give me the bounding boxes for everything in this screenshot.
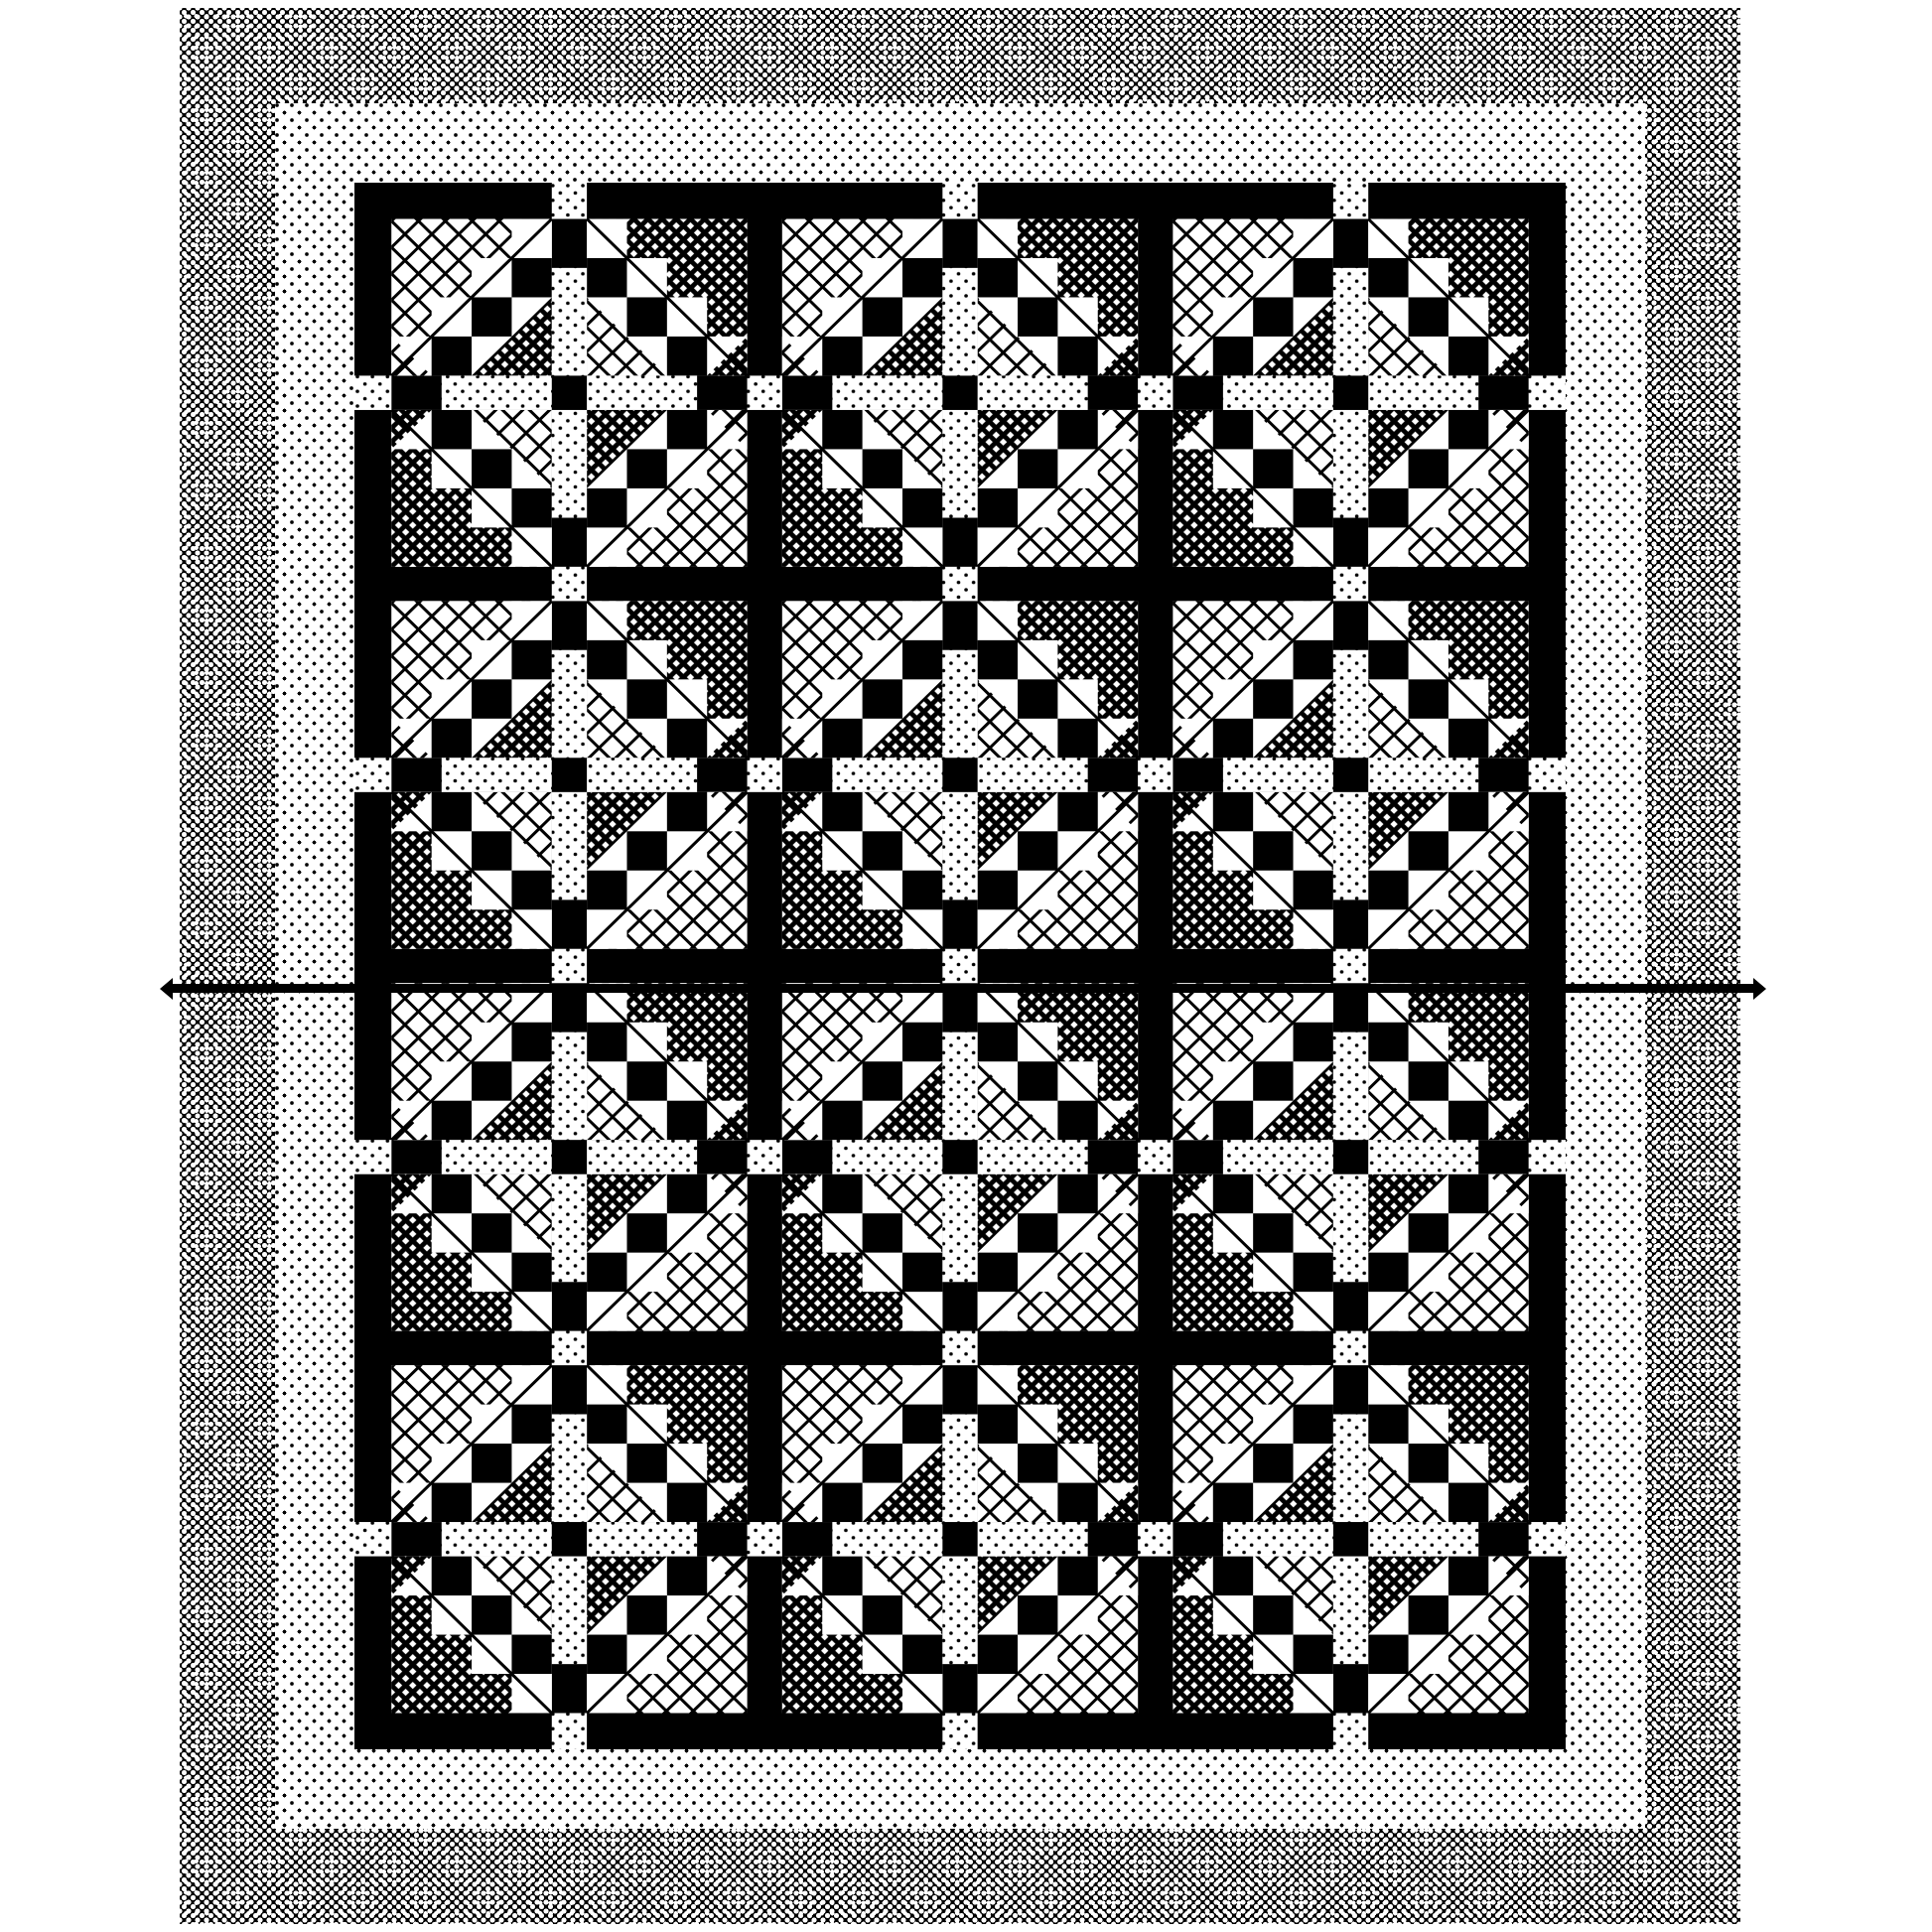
- chain-strip: [442, 375, 552, 410]
- frame-cornerstone: [354, 1140, 391, 1174]
- sub-block-sw: [1173, 410, 1332, 567]
- frame-cornerstone: [354, 758, 391, 792]
- sub-block-se: [587, 1174, 747, 1331]
- chain-cornerstone: [748, 758, 782, 792]
- sub-block-nw: [1173, 219, 1332, 376]
- chain-strip: [552, 792, 587, 900]
- sub-block-sw: [1173, 1174, 1332, 1331]
- outer-speckle-border: [180, 8, 1740, 1924]
- chain-cornerstone: [552, 1331, 587, 1366]
- frame-cornerstone: [552, 183, 587, 219]
- sub-block-nw: [391, 983, 551, 1140]
- quilt-diagram: [180, 8, 1740, 1924]
- sub-block-nw: [391, 219, 551, 376]
- chain-strip: [1368, 758, 1478, 792]
- frame-cornerstone: [1529, 1522, 1566, 1557]
- chain-strip: [1333, 1174, 1368, 1283]
- sub-block-sw: [782, 1174, 942, 1331]
- frame-cornerstone: [942, 183, 977, 219]
- chain-strip: [587, 758, 697, 792]
- chain-cornerstone: [1138, 375, 1173, 410]
- chain-strip: [942, 792, 977, 900]
- sub-block-sw: [391, 792, 551, 949]
- chain-strip: [978, 758, 1088, 792]
- sub-block-ne: [1368, 601, 1528, 758]
- chain-cornerstone: [552, 567, 587, 602]
- chain-cornerstone: [1138, 1140, 1173, 1174]
- fold-line-left-arrow-icon: [160, 978, 173, 1000]
- fold-line-right-arrow-icon: [1753, 978, 1766, 1000]
- chain-strip: [978, 1140, 1088, 1174]
- frame-cornerstone: [1529, 758, 1566, 792]
- chain-strip: [442, 1140, 552, 1174]
- chain-cornerstone: [942, 567, 977, 602]
- sub-block-ne: [587, 219, 747, 376]
- sub-block-nw: [1173, 601, 1332, 758]
- sub-block-sw: [782, 792, 942, 949]
- chain-strip: [942, 1174, 977, 1283]
- chain-strip: [1368, 1140, 1478, 1174]
- sub-block-ne: [587, 1365, 747, 1522]
- chain-strip: [1333, 1557, 1368, 1665]
- sub-block-ne: [978, 1365, 1138, 1522]
- sub-block-sw: [391, 1174, 551, 1331]
- chain-strip: [442, 758, 552, 792]
- sub-block-sw: [1173, 1557, 1332, 1714]
- chain-cornerstone: [748, 1522, 782, 1557]
- chain-strip: [552, 1033, 587, 1141]
- frame-cornerstone: [1333, 1713, 1368, 1749]
- frame-cornerstone: [1529, 375, 1566, 410]
- sub-block-sw: [1173, 792, 1332, 949]
- chain-cornerstone: [942, 949, 977, 984]
- frame-cornerstone: [354, 375, 391, 410]
- chain-strip: [1368, 1522, 1478, 1557]
- chain-cornerstone: [748, 375, 782, 410]
- sub-block-sw: [391, 1557, 551, 1714]
- chain-strip: [942, 410, 977, 518]
- chain-strip: [1333, 792, 1368, 900]
- sub-block-ne: [1368, 219, 1528, 376]
- sub-block-se: [1368, 410, 1528, 567]
- sub-block-se: [978, 1557, 1138, 1714]
- chain-strip: [832, 1140, 942, 1174]
- inner-polka-dot-border: [275, 103, 1645, 1829]
- chain-strip: [942, 1414, 977, 1522]
- chain-strip: [1223, 1522, 1333, 1557]
- chain-strip: [1333, 1033, 1368, 1141]
- chain-cornerstone: [942, 1331, 977, 1366]
- chain-cornerstone: [1333, 1331, 1368, 1366]
- sub-block-se: [587, 410, 747, 567]
- sub-block-nw: [782, 601, 942, 758]
- chain-strip: [1223, 375, 1333, 410]
- chain-strip: [832, 375, 942, 410]
- sub-block-nw: [782, 1365, 942, 1522]
- sub-block-ne: [978, 983, 1138, 1140]
- chain-strip: [1333, 1414, 1368, 1522]
- frame-cornerstone: [942, 1713, 977, 1749]
- sub-block-se: [1368, 792, 1528, 949]
- chain-strip: [978, 1522, 1088, 1557]
- chain-cornerstone: [1138, 758, 1173, 792]
- chain-strip: [552, 1557, 587, 1665]
- sub-block-nw: [782, 983, 942, 1140]
- chain-strip: [832, 1522, 942, 1557]
- chain-strip: [552, 1414, 587, 1522]
- chain-cornerstone: [1138, 1522, 1173, 1557]
- frame-cornerstone: [552, 1713, 587, 1749]
- sub-block-se: [978, 1174, 1138, 1331]
- chain-strip: [832, 758, 942, 792]
- sub-block-nw: [391, 601, 551, 758]
- sub-block-se: [1368, 1557, 1528, 1714]
- chain-strip: [552, 268, 587, 376]
- sub-block-nw: [391, 1365, 551, 1522]
- frame-cornerstone: [354, 1522, 391, 1557]
- chain-strip: [552, 650, 587, 759]
- frame-cornerstone: [1529, 1140, 1566, 1174]
- quilt-field: [354, 183, 1566, 1749]
- sub-block-ne: [587, 983, 747, 1140]
- chain-strip: [587, 1140, 697, 1174]
- sub-block-nw: [1173, 983, 1332, 1140]
- chain-cornerstone: [1333, 567, 1368, 602]
- chain-cornerstone: [748, 1140, 782, 1174]
- chain-strip: [587, 1522, 697, 1557]
- chain-strip: [942, 268, 977, 376]
- sub-block-sw: [391, 410, 551, 567]
- sub-block-ne: [1368, 983, 1528, 1140]
- sub-block-se: [587, 1557, 747, 1714]
- black-frame: [354, 183, 1566, 1749]
- sub-block-se: [1368, 1174, 1528, 1331]
- sub-block-ne: [1368, 1365, 1528, 1522]
- sub-block-nw: [1173, 1365, 1332, 1522]
- chain-strip: [1333, 650, 1368, 759]
- sub-block-sw: [782, 410, 942, 567]
- chain-strip: [1223, 1140, 1333, 1174]
- chain-strip: [552, 1174, 587, 1283]
- chain-strip: [1333, 410, 1368, 518]
- sub-block-ne: [978, 219, 1138, 376]
- frame-cornerstone: [1333, 183, 1368, 219]
- sub-block-se: [587, 792, 747, 949]
- chain-strip: [1223, 758, 1333, 792]
- sub-block-se: [978, 792, 1138, 949]
- chain-strip: [1333, 268, 1368, 376]
- sub-block-ne: [587, 601, 747, 758]
- chain-cornerstone: [1333, 949, 1368, 984]
- chain-strip: [587, 375, 697, 410]
- sub-block-nw: [782, 219, 942, 376]
- chain-strip: [978, 375, 1088, 410]
- sub-block-se: [978, 410, 1138, 567]
- chain-strip: [552, 410, 587, 518]
- sub-block-sw: [782, 1557, 942, 1714]
- sub-block-ne: [978, 601, 1138, 758]
- chain-strip: [1368, 375, 1478, 410]
- chain-cornerstone: [552, 949, 587, 984]
- chain-strip: [942, 1557, 977, 1665]
- pattern-page: [0, 0, 1932, 1932]
- chain-strip: [442, 1522, 552, 1557]
- chain-strip: [942, 650, 977, 759]
- chain-strip: [942, 1033, 977, 1141]
- fold-line: [173, 984, 1753, 993]
